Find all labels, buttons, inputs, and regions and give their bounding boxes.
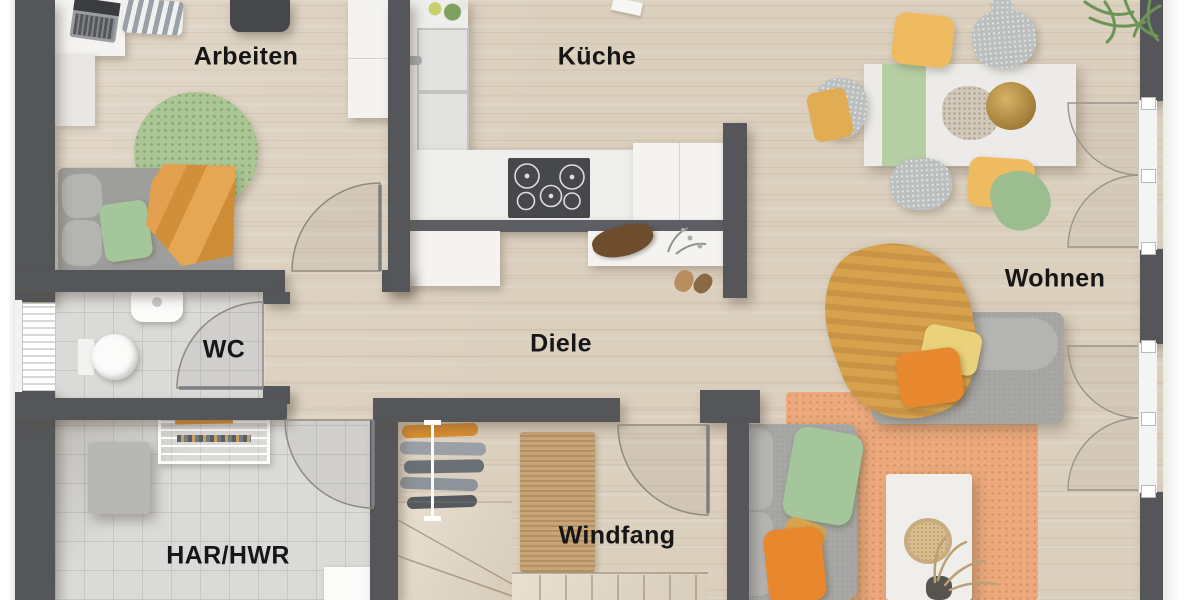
door-arc-windfang (618, 425, 708, 515)
room-label-arbeiten: Arbeiten (194, 43, 299, 72)
french-door-arcs-bottom (1068, 346, 1140, 490)
outside-right (1163, 0, 1200, 600)
cooktop-burners (515, 164, 584, 210)
room-label-har-hwr: HAR/HWR (166, 542, 290, 571)
plan-overlay (0, 0, 1200, 600)
coat-rack-bracket-bottom (424, 516, 441, 521)
room-label-diele: Diele (530, 330, 592, 359)
floor-plan: Arbeiten Küche WC Diele Wohnen HAR/HWR W… (0, 0, 1200, 600)
french-door-top-handle (1141, 169, 1156, 183)
room-label-kueche: Küche (558, 43, 636, 72)
room-label-wc: WC (203, 336, 245, 365)
sideboard-decor-sprigs (668, 228, 706, 254)
door-arc-har-hwr (285, 420, 373, 508)
outside-left (0, 0, 15, 600)
french-door-top-hinge-1 (1141, 97, 1156, 110)
french-door-bottom-hinge-1 (1141, 340, 1156, 353)
stair-tread-lines (398, 502, 708, 600)
french-door-bottom-hinge-2 (1141, 485, 1156, 498)
wc-window-radiator (22, 303, 56, 391)
door-arc-arbeiten (292, 183, 380, 271)
plant-top-right (1085, 0, 1160, 42)
coat-rack-bracket-top (424, 420, 441, 425)
french-door-top-hinge-2 (1141, 242, 1156, 255)
room-label-wohnen: Wohnen (1005, 265, 1106, 294)
coat-rack-rail (431, 422, 434, 519)
french-door-bottom-handle (1141, 412, 1156, 426)
room-label-windfang: Windfang (559, 522, 676, 551)
french-door-arcs-top (1068, 103, 1140, 247)
coffee-table-plant-fronds (935, 538, 996, 590)
